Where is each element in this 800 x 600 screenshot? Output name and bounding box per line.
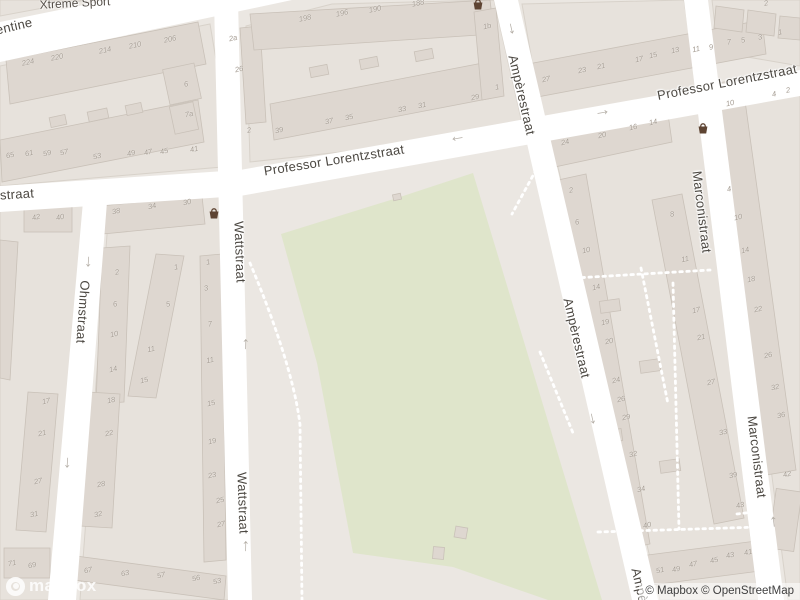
house-number: 9 xyxy=(708,42,714,52)
house-number: 2a xyxy=(228,33,238,44)
house-number: 36 xyxy=(776,410,786,421)
house-number: 42 xyxy=(31,212,41,223)
map-labels-overlay: Professor LorentzstraatProfessor Lorentz… xyxy=(0,0,800,600)
street-label: Marconistraat xyxy=(690,170,715,254)
street-label: Professor Lorentzstraat xyxy=(263,141,406,178)
house-number: 30 xyxy=(182,197,192,208)
house-number: 2 xyxy=(763,0,769,8)
house-number: 1 xyxy=(777,27,783,37)
house-number: 214 xyxy=(98,44,112,55)
house-number: 56 xyxy=(191,573,201,584)
house-number: 40 xyxy=(642,520,652,531)
house-number: 26 xyxy=(616,394,626,405)
house-number: 20 xyxy=(604,336,614,347)
shopping-basket-icon xyxy=(697,122,710,135)
house-number: 15 xyxy=(139,375,149,386)
attribution[interactable]: © Mapbox © OpenStreetMap xyxy=(639,583,800,600)
house-number: 14 xyxy=(591,282,601,293)
house-number: 2 xyxy=(568,185,574,195)
house-number: 34 xyxy=(147,201,157,212)
house-number: 18 xyxy=(746,274,756,285)
house-number: 32 xyxy=(770,382,780,393)
house-number: 27 xyxy=(216,519,226,530)
house-number: 49 xyxy=(671,564,681,575)
oneway-arrow-icon: → xyxy=(592,100,612,120)
house-number: 10 xyxy=(725,98,735,109)
house-number: 7a xyxy=(184,109,194,120)
house-number: 188 xyxy=(411,0,425,9)
house-number: 43 xyxy=(725,550,735,561)
house-number: 19 xyxy=(207,436,217,447)
house-number: 25 xyxy=(215,495,225,506)
shopping-basket-icon xyxy=(208,207,221,220)
house-number: 18 xyxy=(106,395,116,406)
house-number: 5 xyxy=(165,299,171,309)
house-number: 24 xyxy=(560,137,570,148)
house-number: 2 xyxy=(246,125,252,135)
house-number: 32 xyxy=(628,449,638,460)
house-number: 7 xyxy=(207,319,213,329)
oneway-arrow-icon: → xyxy=(448,131,468,151)
house-number: 47 xyxy=(688,559,698,570)
house-number: 71 xyxy=(7,558,17,569)
street-label: Ampèrestraat xyxy=(561,297,594,380)
house-number: 45 xyxy=(159,146,169,157)
house-number: 35 xyxy=(344,112,354,123)
house-number: 11 xyxy=(691,44,700,54)
house-number: 59 xyxy=(42,148,52,159)
oneway-arrow-icon: → xyxy=(762,513,781,532)
house-number: 220 xyxy=(50,51,64,62)
house-number: 14 xyxy=(108,364,118,375)
house-number: 37 xyxy=(324,116,334,127)
house-number: 31 xyxy=(29,509,39,520)
house-number: 16 xyxy=(628,122,638,133)
shopping-basket-icon xyxy=(472,0,485,11)
house-number: 34 xyxy=(636,484,646,495)
house-number: 19 xyxy=(600,317,610,328)
mapbox-logo-icon xyxy=(6,577,25,596)
house-number: 15 xyxy=(206,398,216,409)
house-number: 22 xyxy=(104,428,114,439)
street-label: entine xyxy=(0,15,34,38)
house-number: 29 xyxy=(621,412,631,423)
house-number: 13 xyxy=(670,45,680,56)
mapbox-logo[interactable]: mapbox xyxy=(6,576,97,596)
street-label: Ampèrestraat xyxy=(506,54,539,137)
house-number: 1 xyxy=(173,262,179,272)
house-number: 11 xyxy=(205,355,214,365)
house-number: 61 xyxy=(24,148,34,159)
street-label: Ohmstraat xyxy=(73,280,92,344)
house-number: 4 xyxy=(771,89,777,99)
house-number: 5 xyxy=(740,35,746,45)
house-number: 20 xyxy=(597,130,607,141)
house-number: 6 xyxy=(112,299,118,309)
house-number: 39 xyxy=(274,125,284,136)
house-number: 33 xyxy=(397,104,407,115)
house-number: 26 xyxy=(763,350,773,361)
house-number: 10 xyxy=(109,329,119,340)
house-number: 49 xyxy=(126,148,136,159)
house-number: 23 xyxy=(207,470,217,481)
house-number: 40 xyxy=(55,212,65,223)
house-number: 43 xyxy=(735,500,745,511)
house-number: 47 xyxy=(143,147,153,158)
house-number: 51 xyxy=(655,565,665,576)
oneway-arrow-icon: → xyxy=(61,454,79,472)
house-number: 57 xyxy=(156,570,166,581)
house-number: 27 xyxy=(33,476,43,487)
house-number: 29 xyxy=(470,92,480,103)
house-number: 45 xyxy=(709,555,719,566)
house-number: 17 xyxy=(691,305,701,316)
house-number: 2 xyxy=(114,267,120,277)
house-number: 8 xyxy=(669,209,675,219)
house-number: 10 xyxy=(733,212,743,223)
oneway-arrow-icon: → xyxy=(585,408,605,428)
house-number: 14 xyxy=(740,245,750,256)
street-label: Wattstraat xyxy=(231,221,248,283)
oneway-arrow-icon: → xyxy=(234,537,251,554)
house-number: 6 xyxy=(574,217,580,227)
oneway-arrow-icon: → xyxy=(82,253,100,271)
house-number: 1b xyxy=(482,21,492,32)
house-number: 11 xyxy=(146,344,155,354)
house-number: 17 xyxy=(634,54,644,65)
map-canvas[interactable]: Professor LorentzstraatProfessor Lorentz… xyxy=(0,0,800,600)
street-label: Wattstraat xyxy=(234,472,251,534)
house-number: 206 xyxy=(163,33,177,44)
house-number: 22 xyxy=(753,304,763,315)
house-number: 7 xyxy=(726,37,732,47)
house-number: 21 xyxy=(696,332,706,343)
house-number: 69 xyxy=(27,560,37,571)
poi-label: Xtreme Sport xyxy=(39,0,110,12)
house-number: 1 xyxy=(205,257,211,267)
house-number: 24 xyxy=(611,375,621,386)
street-label: straat xyxy=(0,185,35,202)
house-number: 63 xyxy=(120,568,130,579)
mapbox-wordmark: mapbox xyxy=(29,576,97,596)
house-number: 32 xyxy=(93,509,103,520)
house-number: 11 xyxy=(680,254,689,264)
house-number: 57 xyxy=(59,147,69,158)
house-number: 196 xyxy=(335,7,349,18)
house-number: 3 xyxy=(203,283,209,293)
house-number: 198 xyxy=(298,12,312,23)
house-number: 6 xyxy=(183,79,189,89)
house-number: 2 xyxy=(785,85,791,95)
house-number: 26 xyxy=(234,64,244,75)
oneway-arrow-icon: → xyxy=(234,335,251,352)
house-number: 17 xyxy=(41,396,51,407)
oneway-arrow-icon: → xyxy=(504,18,524,38)
house-number: 31 xyxy=(417,100,427,111)
house-number: 67 xyxy=(83,565,93,576)
house-number: 21 xyxy=(596,61,606,72)
house-number: 65 xyxy=(5,150,15,161)
house-number: 53 xyxy=(92,151,102,162)
house-number: 15 xyxy=(648,50,658,61)
house-number: 4 xyxy=(726,184,732,194)
house-number: 28 xyxy=(96,479,106,490)
house-number: 3 xyxy=(757,32,763,42)
street-label: Marconistraat xyxy=(745,415,770,499)
house-number: 14 xyxy=(648,117,658,128)
house-number: 27 xyxy=(706,377,716,388)
house-number: 21 xyxy=(37,428,47,439)
house-number: 42 xyxy=(782,469,792,480)
house-number: 190 xyxy=(368,3,382,14)
house-number: 38 xyxy=(111,206,121,217)
house-number: 23 xyxy=(577,65,587,76)
house-number: 10 xyxy=(581,245,591,256)
house-number: 39 xyxy=(728,470,738,481)
house-number: 41 xyxy=(743,547,753,558)
house-number: 224 xyxy=(21,56,35,67)
house-number: 41 xyxy=(189,144,199,155)
house-number: 210 xyxy=(128,39,142,50)
house-number: 27 xyxy=(541,74,551,85)
house-number: 33 xyxy=(718,427,728,438)
house-number: 53 xyxy=(212,576,222,587)
house-number: 1 xyxy=(494,82,500,92)
